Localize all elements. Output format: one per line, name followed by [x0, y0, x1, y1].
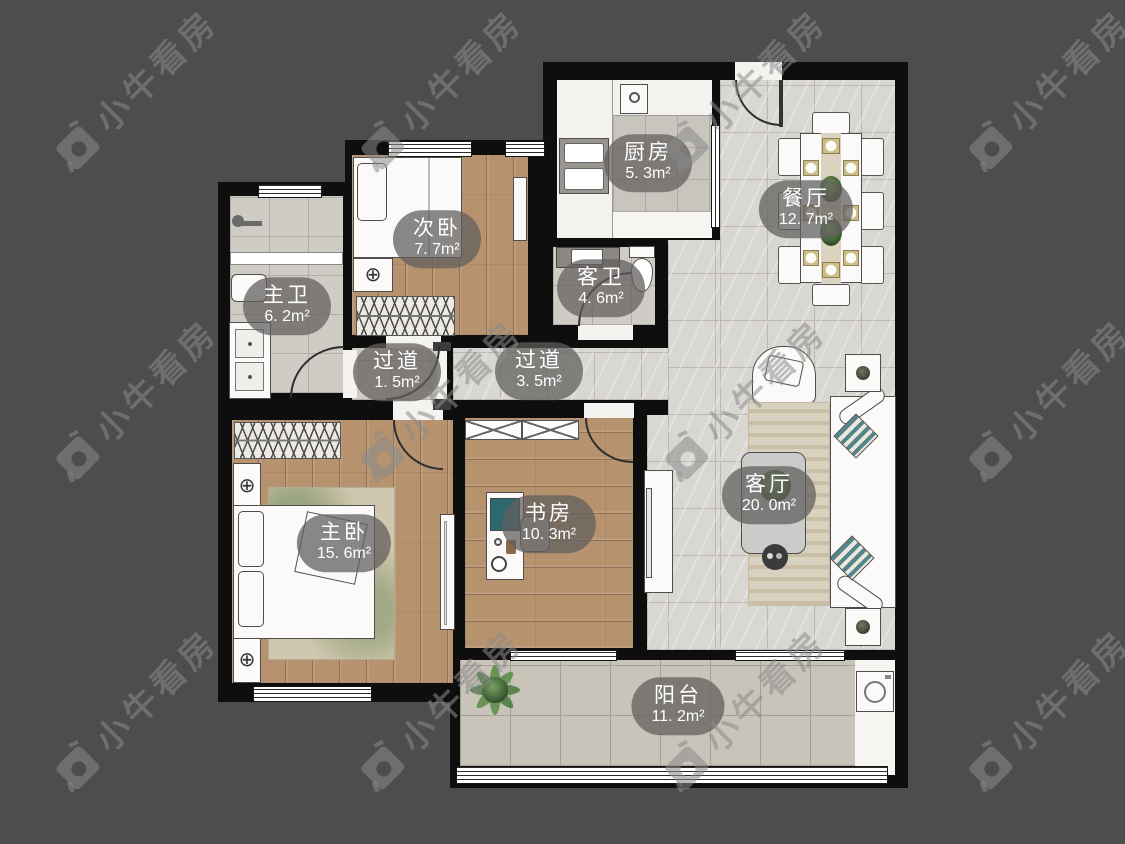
room-label-hallway: 过道 3. 5m²: [495, 342, 583, 400]
window-master-bathroom-top: [258, 184, 322, 198]
room-area: 6. 2m²: [263, 308, 311, 326]
brand-watermark-text: 小牛看房: [995, 0, 1125, 141]
coffee-table-tray: [762, 544, 788, 570]
room-label-guest-bathroom: 客卫 4. 6m²: [557, 259, 645, 317]
brand-watermark: 小牛看房: [957, 0, 1125, 180]
room-name: 客厅: [742, 472, 796, 497]
room-area: 4. 6m²: [577, 290, 625, 308]
wardrobe-second-bedroom: [356, 296, 455, 336]
nightstand-master-1: ⊕: [233, 463, 261, 509]
vanity-sink-1: [235, 329, 264, 358]
window-master-bedroom-bottom: [253, 686, 372, 702]
dining-chair: [812, 112, 850, 134]
brand-watermark-text: 小牛看房: [387, 0, 532, 141]
room-name: 过道: [515, 348, 563, 373]
wardrobe-master-bedroom: [234, 422, 341, 459]
room-area: 10. 3m²: [522, 526, 576, 544]
place-setting: [843, 250, 859, 266]
balcony-railing: [456, 766, 888, 784]
dining-chair: [860, 246, 884, 284]
pillow: [238, 571, 264, 627]
wall-shelf-second-bedroom: [513, 177, 527, 241]
kitchen-sink-basin-1: [564, 143, 604, 163]
room-name: 次卧: [413, 216, 461, 241]
room-area: 20. 0m²: [742, 497, 796, 515]
desk-lamp: [494, 538, 502, 546]
floorplan-screenshot: { "brand_watermark": { "text": "小牛看房" },…: [0, 0, 1125, 844]
crosshair-symbol: ⊕: [234, 638, 260, 682]
nightstand-master-2: ⊕: [233, 637, 261, 683]
kitchen-sliding-door: [711, 125, 720, 228]
washer-button: [885, 675, 891, 679]
side-table: [845, 608, 881, 646]
niu-camera-logo-icon: [351, 736, 413, 798]
plant-center: [482, 677, 508, 703]
window-bedroom2-top: [388, 141, 472, 157]
dining-chair: [860, 138, 884, 176]
niu-camera-logo-icon: [46, 116, 108, 178]
study-closet-cell: [465, 420, 522, 440]
room-area: 5. 3m²: [624, 165, 672, 183]
master-bedroom-door-leaf: [440, 514, 455, 630]
toilet-tank: [629, 246, 655, 258]
brand-watermark: 小牛看房: [44, 617, 227, 800]
pillow: [357, 163, 387, 221]
dining-chair: [860, 192, 884, 230]
room-label-hallway-small: 过道 1. 5m²: [353, 343, 441, 401]
room-label-kitchen: 厨房 5. 3m²: [604, 134, 692, 192]
room-label-study: 书房 10. 3m²: [502, 495, 596, 553]
room-area: 15. 6m²: [317, 545, 371, 563]
room-label-dining: 餐厅 12. 7m²: [759, 180, 853, 238]
place-setting: [822, 138, 840, 154]
room-name: 主卧: [317, 520, 371, 545]
niu-camera-logo-icon: [959, 426, 1021, 488]
tv-panel: [646, 488, 652, 578]
kitchen-sink-basin-2: [564, 168, 604, 190]
brand-watermark: 小牛看房: [44, 0, 227, 180]
hallway-doorframe-bottom: [433, 399, 451, 410]
shower-partition: [230, 252, 343, 265]
room-name: 主卫: [263, 283, 311, 308]
dining-chair: [778, 246, 802, 284]
room-name: 客卫: [577, 265, 625, 290]
crosshair-symbol: ⊕: [354, 259, 392, 291]
brand-watermark-text: 小牛看房: [82, 0, 227, 141]
brand-watermark-text: 小牛看房: [82, 617, 227, 762]
room-name: 书房: [522, 501, 576, 526]
niu-camera-logo-icon: [46, 736, 108, 798]
side-table: [845, 354, 881, 392]
room-label-master-bathroom: 主卫 6. 2m²: [243, 277, 331, 335]
slider-study-balcony: [510, 650, 617, 661]
nightstand-second-bedroom: ⊕: [353, 258, 393, 292]
brand-watermark-text: 小牛看房: [82, 307, 227, 452]
entry-door-leaf: [779, 80, 783, 127]
room-name: 过道: [373, 349, 421, 374]
washer-door: [864, 681, 886, 703]
room-name: 餐厅: [779, 186, 833, 211]
room-area: 1. 5m²: [373, 374, 421, 392]
niu-camera-logo-icon: [959, 736, 1021, 798]
room-area: 3. 5m²: [515, 373, 563, 391]
brand-watermark: 小牛看房: [957, 617, 1125, 800]
place-setting: [822, 262, 840, 278]
place-setting: [803, 250, 819, 266]
dining-chair: [778, 138, 802, 176]
niu-camera-logo-icon: [959, 116, 1021, 178]
washing-machine: [856, 671, 894, 712]
side-table-plant: [856, 620, 870, 634]
shower-head: [232, 215, 244, 227]
desk-clock: [491, 556, 507, 572]
brand-watermark-text: 小牛看房: [995, 617, 1125, 762]
room-label-living-room: 客厅 20. 0m²: [722, 466, 816, 524]
side-table-plant: [856, 366, 870, 380]
place-setting: [803, 160, 819, 176]
dining-chair: [812, 284, 850, 306]
niu-camera-logo-icon: [46, 426, 108, 488]
room-label-master-bedroom: 主卧 15. 6m²: [297, 514, 391, 572]
slider-living-balcony: [735, 650, 845, 661]
pillow: [238, 511, 264, 567]
room-label-balcony: 阳台 11. 2m²: [631, 677, 724, 735]
room-label-second-bedroom: 次卧 7. 7m²: [393, 210, 481, 268]
room-name: 阳台: [651, 683, 704, 708]
brand-watermark: 小牛看房: [957, 307, 1125, 490]
room-area: 11. 2m²: [651, 708, 704, 726]
place-setting: [843, 160, 859, 176]
entry-door-opening: [735, 62, 782, 80]
study-closet-cell: [522, 420, 579, 440]
crosshair-symbol: ⊕: [234, 464, 260, 508]
vanity-sink-2: [235, 362, 264, 391]
entry-hall-floor: [668, 240, 720, 650]
room-area: 7. 7m²: [413, 241, 461, 259]
range-hood-box: [620, 84, 648, 114]
brand-watermark-text: 小牛看房: [995, 307, 1125, 452]
study-door-opening: [584, 403, 634, 418]
room-name: 厨房: [624, 140, 672, 165]
room-area: 12. 7m²: [779, 211, 833, 229]
guest-bathroom-door-opening: [578, 325, 633, 340]
window-top-small: [505, 141, 545, 157]
brand-watermark: 小牛看房: [44, 307, 227, 490]
stove-icon: [629, 92, 640, 103]
balcony-plant: [464, 658, 526, 722]
